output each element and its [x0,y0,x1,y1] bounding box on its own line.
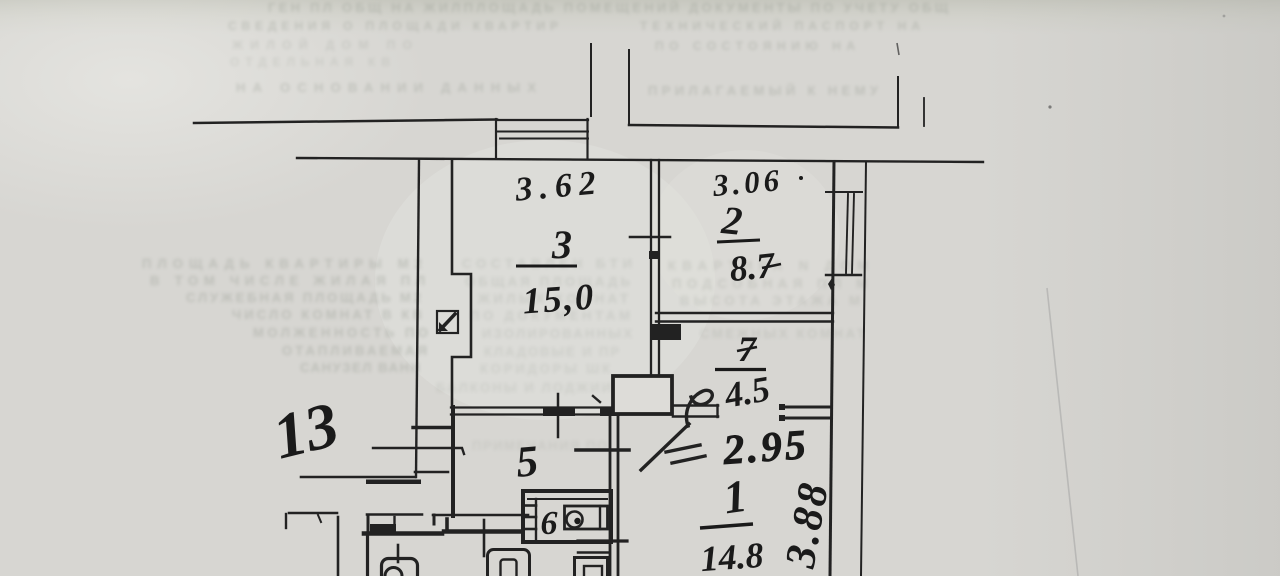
svg-text:2.95: 2.95 [721,422,810,474]
svg-text:ГЕН ПЛ ОБЩ НА ЖИЛПЛОЩАДЬ ПОМЕЩ: ГЕН ПЛ ОБЩ НА ЖИЛПЛОЩАДЬ ПОМЕЩЕНИЙ ДОКУМ… [268,0,949,15]
svg-text:ПРИЛАГАЕМЫЙ К НЕМУ: ПРИЛАГАЕМЫЙ К НЕМУ [648,83,879,98]
svg-text:ИЗОЛИРОВАННЫХ: ИЗОЛИРОВАННЫХ [482,326,632,341]
svg-text:ТЕХНИЧЕСКИЙ ПАСПОРТ НА: ТЕХНИЧЕСКИЙ ПАСПОРТ НА [640,18,920,33]
svg-text:3.62: 3.62 [513,164,604,209]
svg-text:БАЛКОНЫ И ЛОДЖИИ: БАЛКОНЫ И ЛОДЖИИ [436,380,611,395]
svg-text:15,0: 15,0 [521,277,596,323]
svg-text:СЛУЖЕБНАЯ ПЛОЩАДЬ М2: СЛУЖЕБНАЯ ПЛОЩАДЬ М2 [186,290,421,305]
svg-text:ПО СОСТОЯНИЮ НА: ПО СОСТОЯНИЮ НА [655,39,855,53]
svg-text:СМЕЖНЫХ КОМНАТ: СМЕЖНЫХ КОМНАТ [700,326,865,341]
svg-text:САНУЗЕЛ ВАНН: САНУЗЕЛ ВАНН [300,360,420,375]
svg-text:КЛАДОВЫЕ И ПР: КЛАДОВЫЕ И ПР [484,344,619,359]
svg-text:4.5: 4.5 [721,368,773,415]
svg-text:6: 6 [541,505,558,542]
svg-text:3: 3 [551,222,572,267]
svg-text:14.8: 14.8 [699,535,765,576]
svg-text:5: 5 [514,436,540,487]
svg-text:3.06: 3.06 [710,162,784,203]
svg-text:КОРИДОРЫ ШК: КОРИДОРЫ ШК [480,361,610,376]
svg-text:НА ОСНОВАНИИ ДАННЫХ: НА ОСНОВАНИИ ДАННЫХ [236,80,536,95]
